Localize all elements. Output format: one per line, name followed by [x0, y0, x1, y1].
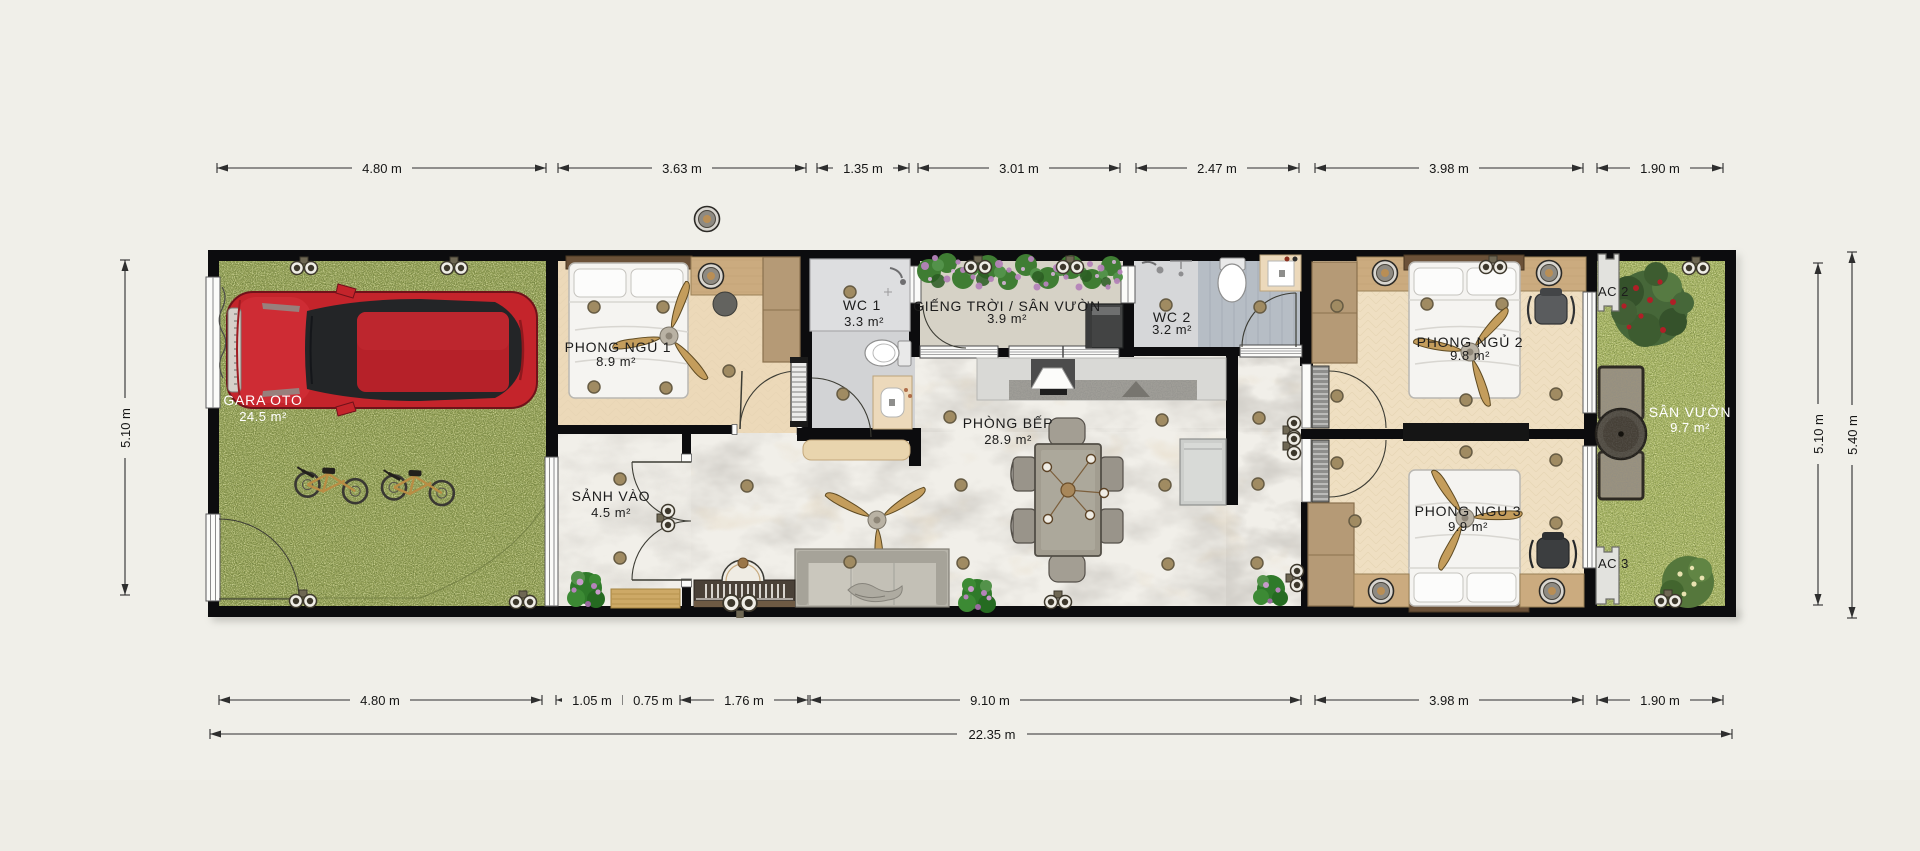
svg-text:9.9 m²: 9.9 m²	[1448, 519, 1488, 534]
svg-text:1.35 m: 1.35 m	[843, 161, 883, 176]
svg-text:PHÒNG BẾP: PHÒNG BẾP	[963, 415, 1053, 431]
svg-text:1.90 m: 1.90 m	[1640, 693, 1680, 708]
svg-text:1.90 m: 1.90 m	[1640, 161, 1680, 176]
svg-text:4.80 m: 4.80 m	[362, 161, 402, 176]
svg-text:AC 3: AC 3	[1598, 556, 1629, 571]
svg-text:24.5 m²: 24.5 m²	[239, 409, 287, 424]
svg-text:9.7 m²: 9.7 m²	[1670, 420, 1710, 435]
svg-text:9.10 m: 9.10 m	[970, 693, 1010, 708]
svg-text:4.80 m: 4.80 m	[360, 693, 400, 708]
svg-text:5.10 m: 5.10 m	[1811, 414, 1826, 454]
svg-text:4.5 m²: 4.5 m²	[591, 505, 631, 520]
svg-text:9.8 m²: 9.8 m²	[1450, 348, 1490, 363]
svg-text:3.98 m: 3.98 m	[1429, 693, 1469, 708]
svg-text:3.63 m: 3.63 m	[662, 161, 702, 176]
svg-text:3.98 m: 3.98 m	[1429, 161, 1469, 176]
svg-text:SÂN VƯỜN: SÂN VƯỜN	[1649, 404, 1731, 420]
svg-text:28.9 m²: 28.9 m²	[984, 432, 1032, 447]
svg-text:GARA OTO: GARA OTO	[223, 392, 302, 408]
svg-text:2.47 m: 2.47 m	[1197, 161, 1237, 176]
svg-text:SẢNH VÀO: SẢNH VÀO	[572, 488, 651, 504]
svg-text:3.3 m²: 3.3 m²	[844, 314, 884, 329]
svg-text:PHONG NGỦ 1: PHONG NGỦ 1	[565, 338, 672, 355]
svg-text:AC 2: AC 2	[1598, 284, 1629, 299]
svg-text:5.10 m: 5.10 m	[118, 408, 133, 448]
svg-text:3.9 m²: 3.9 m²	[987, 311, 1027, 326]
svg-text:WC 1: WC 1	[843, 297, 881, 313]
svg-text:0.75 m: 0.75 m	[633, 693, 673, 708]
svg-text:22.35 m: 22.35 m	[969, 727, 1016, 742]
svg-text:5.40 m: 5.40 m	[1845, 415, 1860, 455]
svg-text:PHONG NGU 3: PHONG NGU 3	[1415, 503, 1522, 519]
svg-text:1.05 m: 1.05 m	[572, 693, 612, 708]
svg-text:3.2 m²: 3.2 m²	[1152, 322, 1192, 337]
svg-text:8.9 m²: 8.9 m²	[596, 354, 636, 369]
svg-text:1.76 m: 1.76 m	[724, 693, 764, 708]
svg-text:3.01 m: 3.01 m	[999, 161, 1039, 176]
